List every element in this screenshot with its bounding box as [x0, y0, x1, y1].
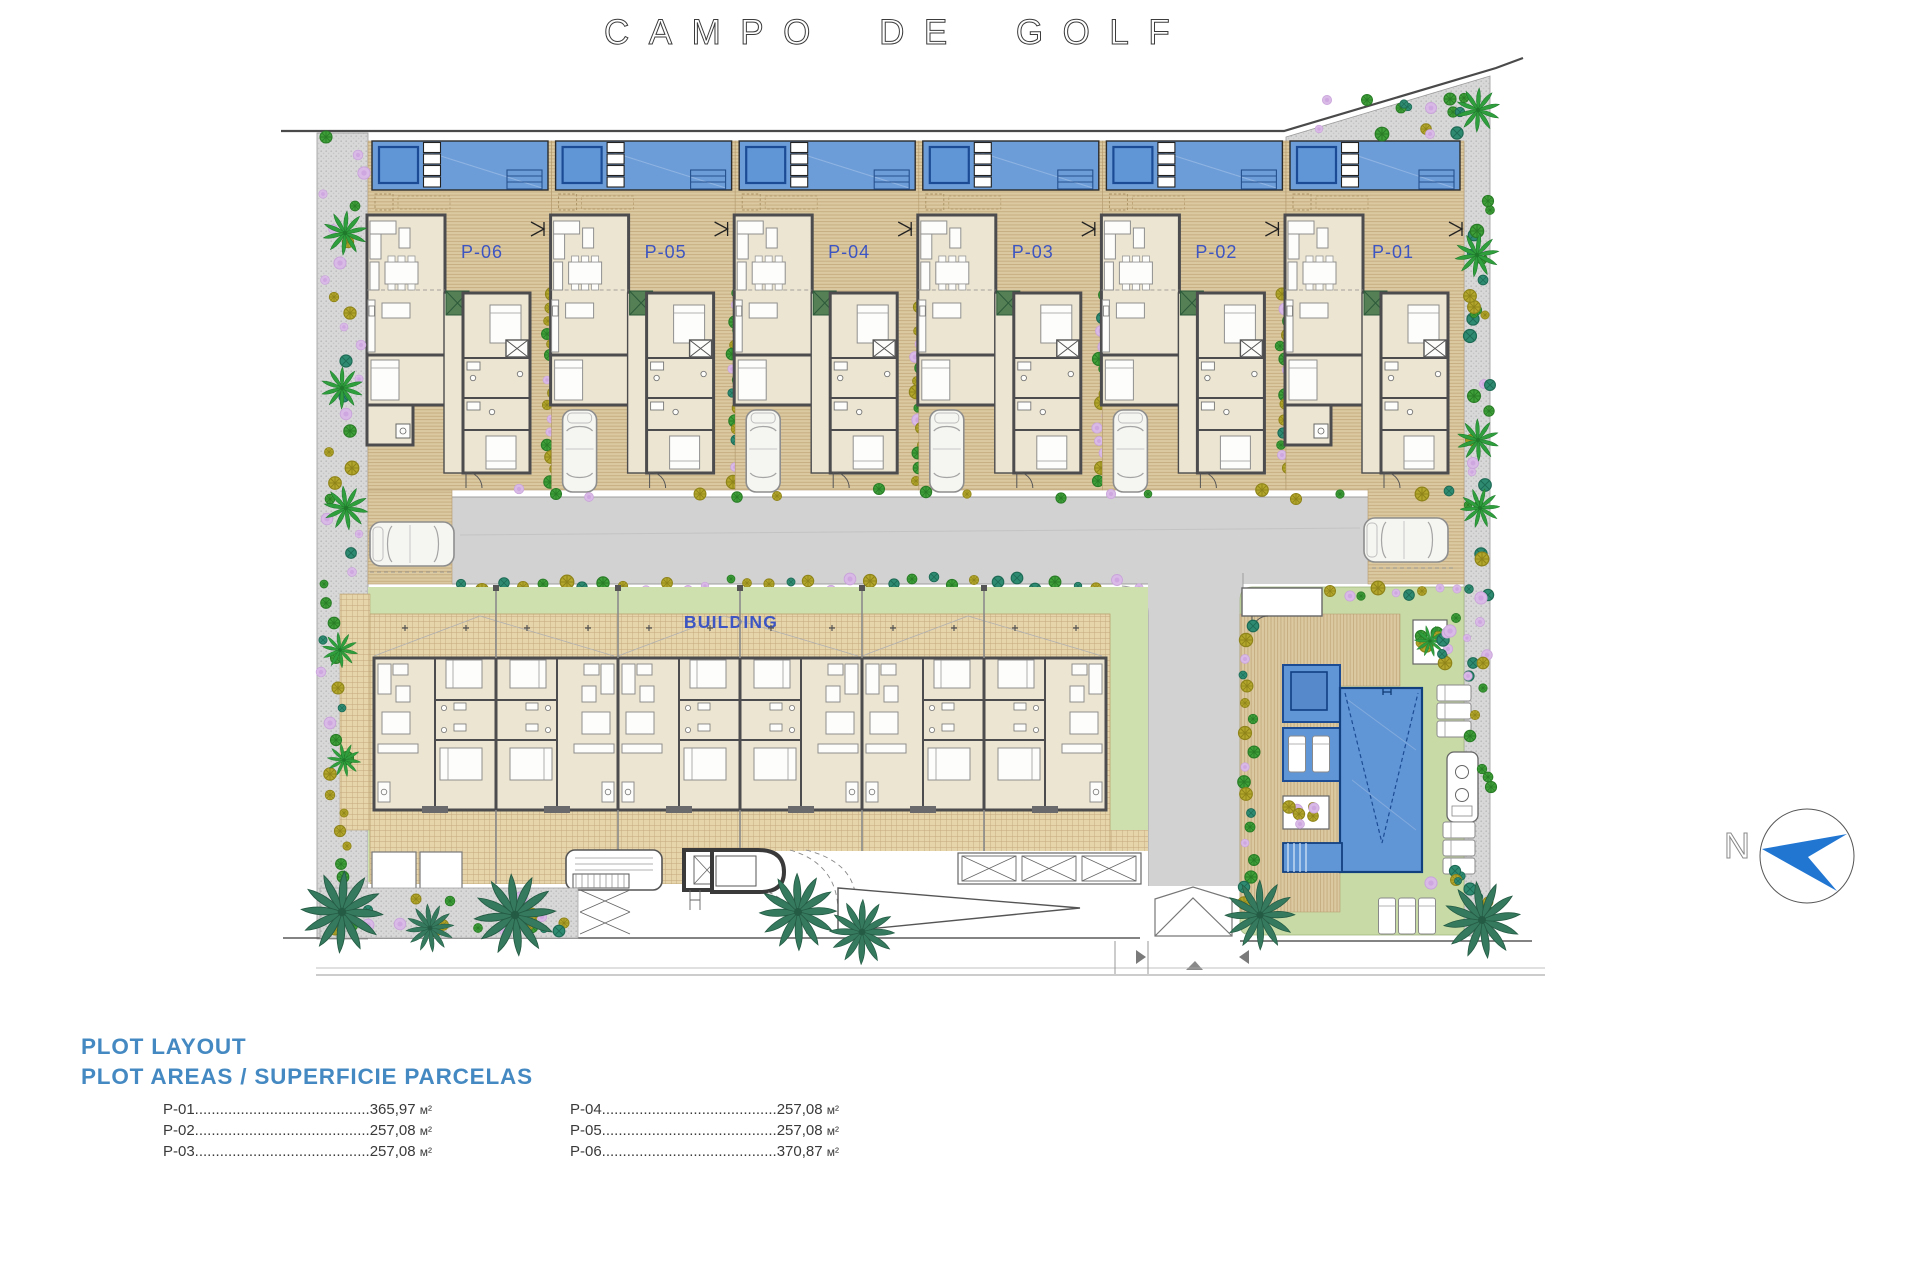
svg-text:P-02..........................: P-02....................................…	[163, 1122, 432, 1139]
svg-text:P-01..........................: P-01....................................…	[163, 1101, 432, 1118]
svg-text:P-04..........................: P-04....................................…	[570, 1101, 839, 1118]
svg-text:PLOT LAYOUT: PLOT LAYOUT	[81, 1034, 246, 1059]
svg-text:P-05: P-05	[645, 242, 687, 262]
svg-text:P-02: P-02	[1195, 242, 1237, 262]
svg-text:CAMPO DE GOLF: CAMPO DE GOLF	[604, 13, 1189, 52]
svg-text:P-06: P-06	[461, 242, 503, 262]
svg-text:BUILDING: BUILDING	[684, 612, 778, 632]
svg-text:PLOT AREAS / SUPERFICIE PARCEL: PLOT AREAS / SUPERFICIE PARCELAS	[81, 1064, 533, 1089]
svg-text:P-05..........................: P-05....................................…	[570, 1122, 839, 1139]
svg-text:P-04: P-04	[828, 242, 870, 262]
svg-text:P-01: P-01	[1372, 242, 1414, 262]
svg-text:P-03..........................: P-03....................................…	[163, 1143, 432, 1160]
svg-text:P-06..........................: P-06....................................…	[570, 1143, 839, 1160]
svg-text:N: N	[1724, 825, 1750, 866]
svg-text:P-03: P-03	[1012, 242, 1054, 262]
